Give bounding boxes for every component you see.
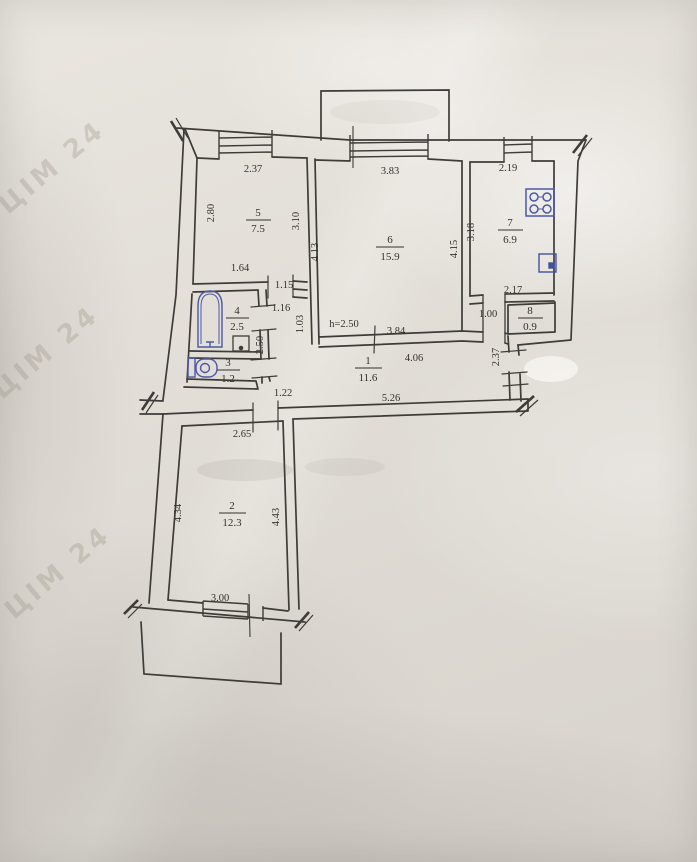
break-bottom-right <box>295 612 309 628</box>
window-room6 <box>350 134 428 161</box>
toilet-icon <box>188 358 217 377</box>
dim-hall-4-06: 4.06 <box>405 353 423 364</box>
window-tick-room2 <box>249 594 250 637</box>
floor-plan-drawing: ЦІМ 24 ЦІМ 24 ЦІМ 24 <box>0 0 697 862</box>
room6-area: 15.9 <box>380 251 400 263</box>
room7-number: 7 <box>507 217 513 229</box>
wall-room6-kitchen <box>462 161 470 331</box>
stove-icon <box>526 189 554 216</box>
wall-hall-bottom-lower <box>182 399 528 426</box>
room4-area: 2.5 <box>230 321 244 333</box>
room-label-2: 2 12.3 <box>219 500 246 529</box>
room5-number: 5 <box>255 207 261 219</box>
room8-area: 0.9 <box>523 321 537 333</box>
dim-w6-top: 3.83 <box>381 166 399 177</box>
floor-plan-photo: ЦІМ 24 ЦІМ 24 ЦІМ 24 <box>0 0 697 862</box>
room8-number: 8 <box>527 305 533 317</box>
dim-w5-left: 2.80 <box>206 204 217 222</box>
whiteout-patch <box>524 356 578 382</box>
watermark-text: ЦІМ 24 <box>0 520 117 626</box>
dim-hall-5-26: 5.26 <box>382 393 400 404</box>
dim-w2-left: 4.34 <box>173 503 184 522</box>
wall-bath-right-inner <box>266 290 270 381</box>
room3-number: 3 <box>225 357 231 369</box>
dim-w6-left: 4.13 <box>310 243 321 261</box>
dim-w2-right: 4.43 <box>271 508 282 526</box>
room4-number: 4 <box>234 305 240 317</box>
wall-entry-inner <box>508 336 510 400</box>
watermark-text: ЦІМ 24 <box>0 115 111 221</box>
dim-w5-right: 3.10 <box>291 212 302 230</box>
wall-passage-stub <box>293 289 307 298</box>
wall-left-interior-room5 <box>193 158 197 284</box>
room-label-1: 1 11.6 <box>355 355 382 384</box>
door-ticks-entry <box>501 350 528 386</box>
door-jambs-1-22 <box>253 401 278 432</box>
dim-w2-top: 2.65 <box>233 429 251 440</box>
dim-passage-1-03: 1.03 <box>295 315 306 333</box>
dim-w7-top: 2.19 <box>499 163 517 174</box>
wall-top-interior-room5 <box>197 157 307 159</box>
dim-door-1-16: 1.16 <box>272 303 290 314</box>
room-label-8: 8 0.9 <box>518 305 543 333</box>
dim-w6-right: 4.15 <box>449 240 460 258</box>
dim-ceiling-height: h=2.50 <box>329 319 359 330</box>
room-label-4: 4 2.5 <box>226 305 249 333</box>
dim-door-1-22: 1.22 <box>274 388 292 399</box>
wall-top-left-seam <box>185 129 197 158</box>
dim-tick-room6-bottom <box>374 326 375 353</box>
dim-w7-bottom: 2.17 <box>504 285 522 296</box>
balcony-bottom-outline <box>141 622 281 684</box>
wall-hall-bottom-upper <box>163 399 528 414</box>
wall-left-exterior <box>163 129 184 400</box>
dim-door-1-15: 1.15 <box>275 280 293 291</box>
room-labels: 5 7.5 6 15.9 7 6.9 4 2.5 3 1.2 8 0.9 <box>217 207 543 529</box>
wall-room2-right <box>283 419 299 610</box>
dim-w5-top: 2.37 <box>244 164 262 175</box>
bath-sink-icon <box>233 336 249 351</box>
room-label-6: 6 15.9 <box>376 234 404 263</box>
room3-area: 1.2 <box>221 373 235 385</box>
room-label-5: 5 7.5 <box>246 207 271 235</box>
room-label-7: 7 6.9 <box>498 217 523 246</box>
room1-number: 1 <box>365 355 371 367</box>
wall-top-interior-room6 <box>316 159 462 161</box>
dim-w7-left: 3.18 <box>466 223 477 241</box>
room2-number: 2 <box>229 500 235 512</box>
dim-w6-bottom: 3.84 <box>387 326 406 337</box>
wall-room6-bottom-upper <box>319 331 508 337</box>
dim-w4-top: 1.64 <box>231 263 250 274</box>
room1-area: 11.6 <box>359 372 378 384</box>
dim-entry-2-37: 2.37 <box>491 348 502 366</box>
room5-area: 7.5 <box>251 223 265 235</box>
room2-area: 12.3 <box>222 517 242 529</box>
door-ticks-toilet <box>251 358 277 378</box>
bathtub-icon <box>198 291 222 347</box>
break-top-left <box>171 121 183 141</box>
dim-door-1-00: 1.00 <box>479 309 497 320</box>
dim-w2-bottom: 3.00 <box>211 593 229 604</box>
room6-number: 6 <box>387 234 393 246</box>
wall-top-interior-kitchen <box>470 161 554 162</box>
watermark-group: ЦІМ 24 ЦІМ 24 ЦІМ 24 <box>0 115 117 626</box>
dim-passage-2-50: 2.50 <box>255 336 266 354</box>
walls <box>133 90 586 684</box>
watermark-text: ЦІМ 24 <box>0 300 105 406</box>
wall-room6-bottom-lower <box>319 341 508 347</box>
room7-area: 6.9 <box>503 234 517 246</box>
